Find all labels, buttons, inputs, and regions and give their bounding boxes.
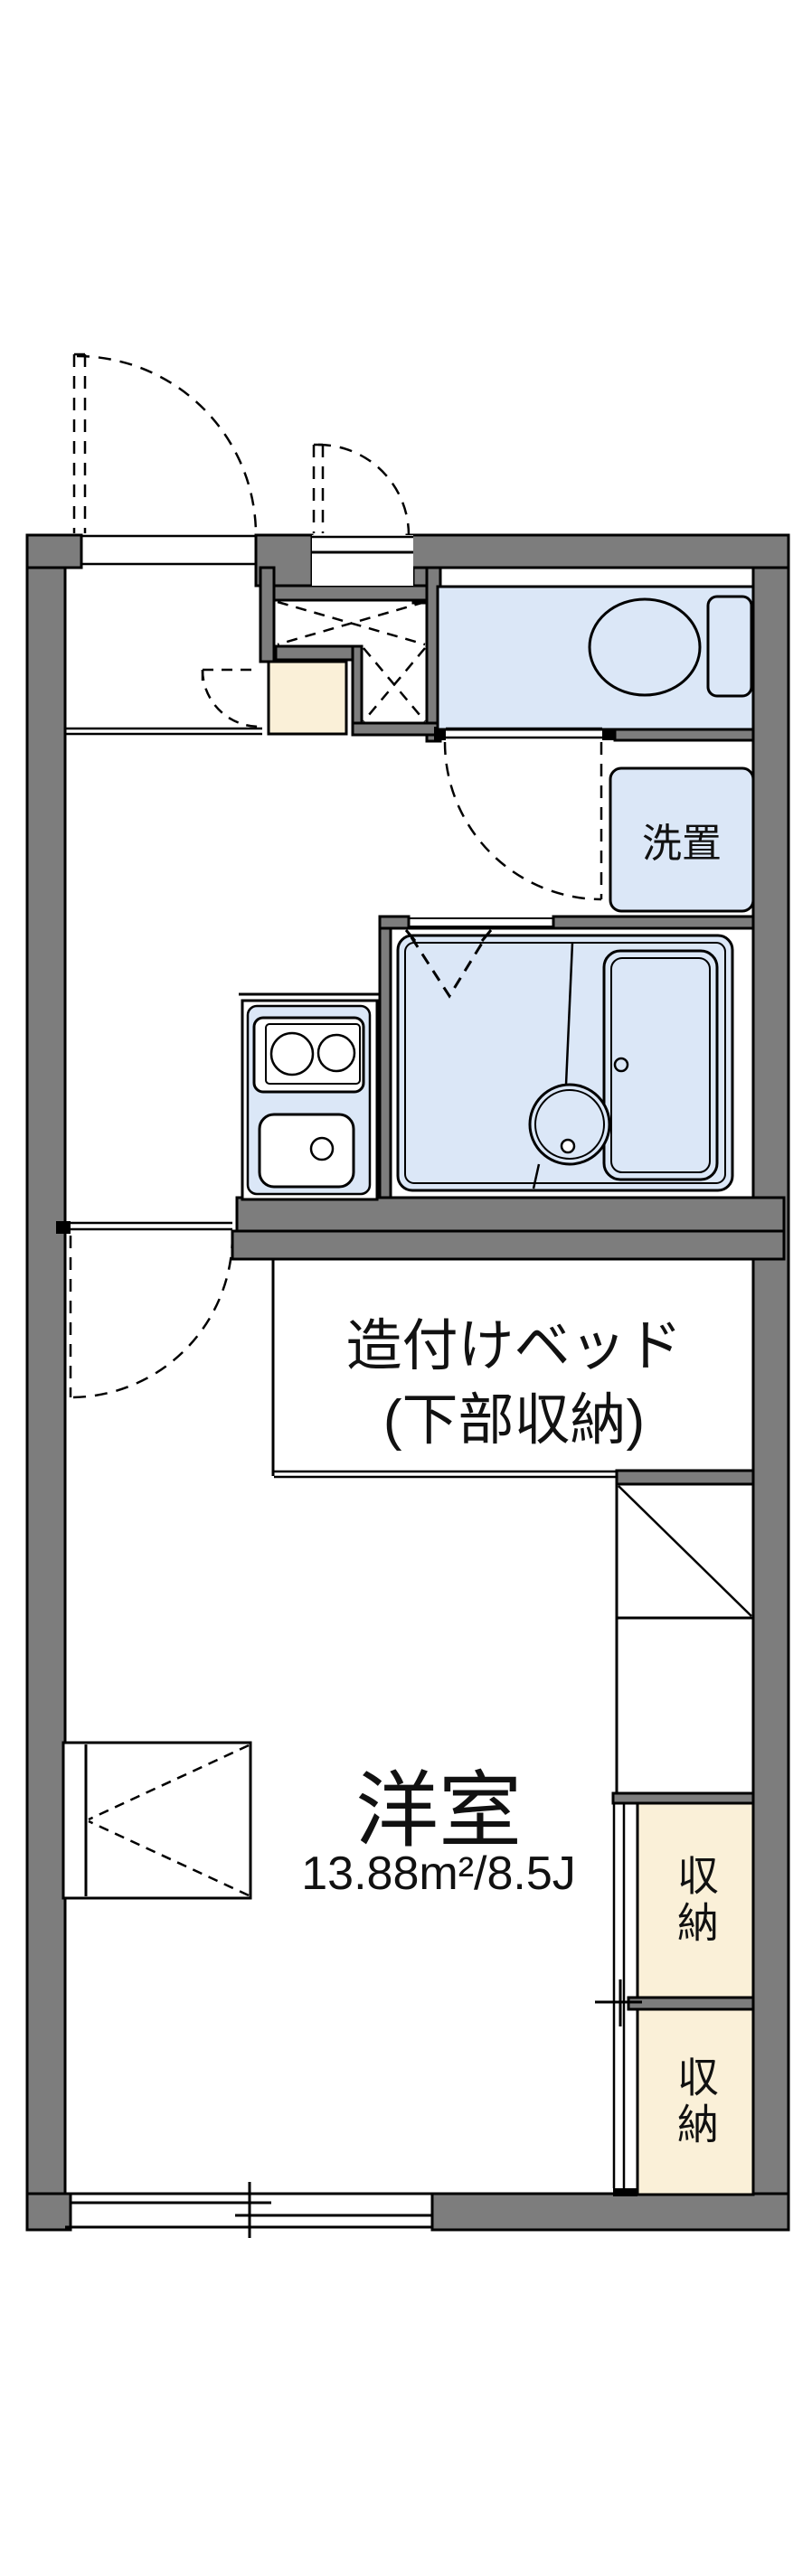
storage-upper-label: 収納	[637, 1803, 753, 1998]
built-in-bed-label: 造付けベッド	[278, 1309, 751, 1372]
room-name-label: 洋室	[217, 1758, 660, 1848]
door-wall-stub	[56, 1221, 71, 1234]
toilet-icon	[590, 597, 751, 696]
kitchen-counter	[239, 994, 381, 1199]
toilet-room	[438, 587, 753, 729]
laundry-space-label: 洗置	[610, 768, 753, 911]
hallway-door-arc	[445, 742, 601, 899]
bed-storage-sub-label: (下部収納)	[278, 1383, 751, 1446]
stove-icon	[254, 1018, 364, 1092]
refrigerator-space	[617, 1484, 753, 1793]
sink-icon	[260, 1114, 354, 1187]
wash-basin-icon	[530, 1085, 609, 1164]
shoe-cabinet	[269, 662, 346, 734]
room-area-label: 13.88m²/8.5J	[217, 1846, 660, 1902]
meter-box-door-arc	[314, 445, 409, 535]
floor-plan: 洗置 造付けベッド (下部収納) 洋室 13.88m²/8.5J 収納 収納	[0, 0, 812, 2576]
main-room-door-arc	[71, 1236, 232, 1397]
genkan-step-edge	[65, 729, 262, 734]
sliding-window	[65, 2182, 432, 2238]
bathroom	[391, 918, 753, 1198]
shoe-cabinet-door-arc	[203, 670, 260, 727]
storage-lower-label: 収納	[637, 2009, 753, 2195]
main-room-doorway-sill	[71, 1223, 232, 1229]
entrance-door-arc	[74, 354, 256, 564]
meter-box-recess	[312, 535, 413, 586]
